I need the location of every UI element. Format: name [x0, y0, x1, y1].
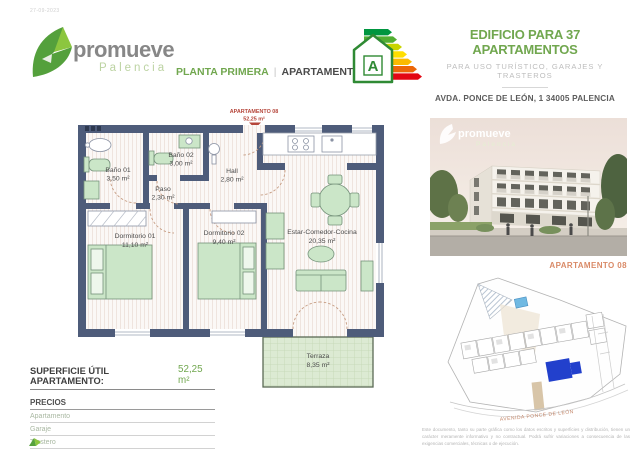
room-area: 3,00 m² [169, 161, 193, 168]
print-date: 27-09-2023 [30, 8, 60, 14]
floorplan: APARTAMENTO 08 52,25 m² [60, 105, 390, 400]
bedroom-01-furniture [88, 211, 152, 299]
entrance-label: APARTAMENTO 08 [230, 109, 279, 115]
stove-icon [288, 136, 314, 152]
building-address: AVDA. PONCE DE LEÓN, 1 34005 PALENCIA [420, 94, 630, 103]
room-label: Hall [226, 168, 238, 175]
room-label: Terraza [307, 353, 330, 360]
room-area: 20,35 m² [309, 238, 337, 245]
entrance-area: 52,25 m² [243, 117, 265, 123]
room-area: 2,80 m² [220, 177, 244, 184]
vent-marks [85, 126, 101, 131]
kitchen-counter [263, 133, 376, 155]
logo-subtitle: Palencia [99, 62, 174, 74]
room-area: 3,50 m² [106, 176, 130, 183]
room-label: Dormitorio 01 [115, 233, 156, 240]
legal-disclaimer: Este documento, tanto su parte gráfica c… [422, 427, 630, 447]
room-area: 9,40 m² [212, 239, 236, 246]
brochure-page: 27-09-2023 promueve Palencia PLANTA PRIM… [0, 0, 640, 452]
surface-row: SUPERFICIE ÚTIL APARTAMENTO: 52,25 m² [30, 364, 215, 390]
footer-leaf-icon [28, 437, 44, 447]
sink-icon [322, 136, 342, 152]
room-label: Baño 02 [168, 152, 194, 159]
logo-wordmark: promueve [73, 39, 174, 61]
building-render: promueve Palencia [430, 118, 627, 256]
tv-unit-icon [361, 261, 373, 291]
promueve-logo: promueve Palencia [73, 39, 174, 74]
coffee-table-icon [308, 246, 334, 262]
promueve-leaf-icon [28, 26, 74, 78]
siteplan-apartment-label: APARTAMENTO 08 [505, 261, 627, 270]
header-divider [502, 87, 548, 88]
room-area: 11,10 m² [122, 242, 149, 249]
energy-rating-icon: A [352, 28, 424, 86]
watermark-text: promueve [458, 128, 511, 140]
summary-block: SUPERFICIE ÚTIL APARTAMENTO: 52,25 m² PR… [30, 364, 215, 452]
surface-label: SUPERFICIE ÚTIL APARTAMENTO: [30, 366, 178, 386]
plan-floor-label: PLANTA PRIMERA [176, 66, 269, 78]
plan-title: PLANTA PRIMERA|APARTAMENTO 08 [176, 66, 376, 78]
room-label: Dormitorio 02 [204, 230, 245, 237]
watermark-subtext: Palencia [476, 141, 517, 148]
room-label: Baño 01 [105, 167, 131, 174]
room-area: 2,30 m² [151, 195, 175, 202]
building [470, 166, 600, 229]
surface-value: 52,25 m² [178, 364, 215, 386]
price-row-storage: Trastero [30, 436, 215, 449]
wardrobe-icon [88, 211, 146, 226]
title-separator: | [274, 66, 277, 78]
prices-title: PRECIOS [30, 398, 215, 410]
building-title: EDIFICIO PARA 37 APARTAMENTOS [420, 27, 630, 57]
price-row-apartment: Apartamento [30, 410, 215, 423]
room-area: 8,35 m² [306, 362, 330, 369]
siteplan: AVENIDA PONCE DE LEÓN [440, 274, 632, 424]
room-label: Estar-Comedor-Cocina [287, 229, 357, 236]
energy-letter: A [368, 58, 379, 75]
building-header: EDIFICIO PARA 37 APARTAMENTOS PARA USO T… [420, 27, 630, 103]
room-label: Paso [155, 186, 171, 193]
building-subtitle: PARA USO TURÍSTICO, GARAJES Y TRASTEROS [420, 62, 630, 80]
price-row-garage: Garaje [30, 423, 215, 436]
